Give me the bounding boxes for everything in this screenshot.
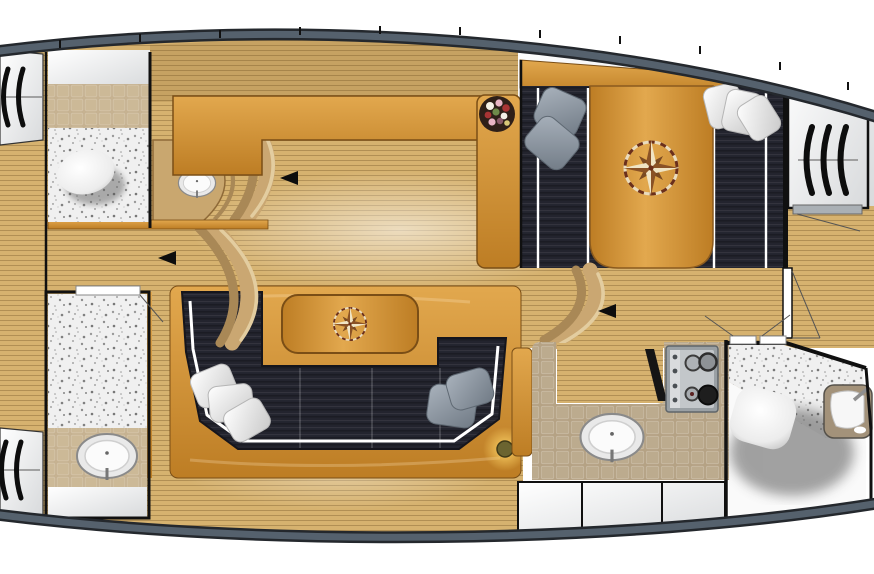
door-threshold [793, 205, 862, 214]
galley [512, 340, 745, 536]
head-aft-port [46, 286, 163, 518]
floor-plan-canvas [0, 0, 874, 574]
salon [144, 286, 527, 478]
yacht-floor-plan [0, 0, 874, 574]
shower-floor [48, 294, 147, 428]
door-leaf [783, 268, 792, 338]
stove [666, 346, 718, 412]
corner-sink [824, 385, 872, 438]
flower-pot-icon [479, 96, 515, 132]
head-floor [48, 487, 147, 517]
head-forward [48, 50, 150, 228]
bow-cabin [520, 58, 790, 268]
head-wall-top [48, 50, 150, 88]
door-threshold [760, 336, 786, 344]
door-threshold [76, 286, 140, 295]
galley-cabinet-end [512, 348, 532, 456]
door-threshold [730, 336, 756, 344]
head-tile-wall [48, 84, 150, 130]
